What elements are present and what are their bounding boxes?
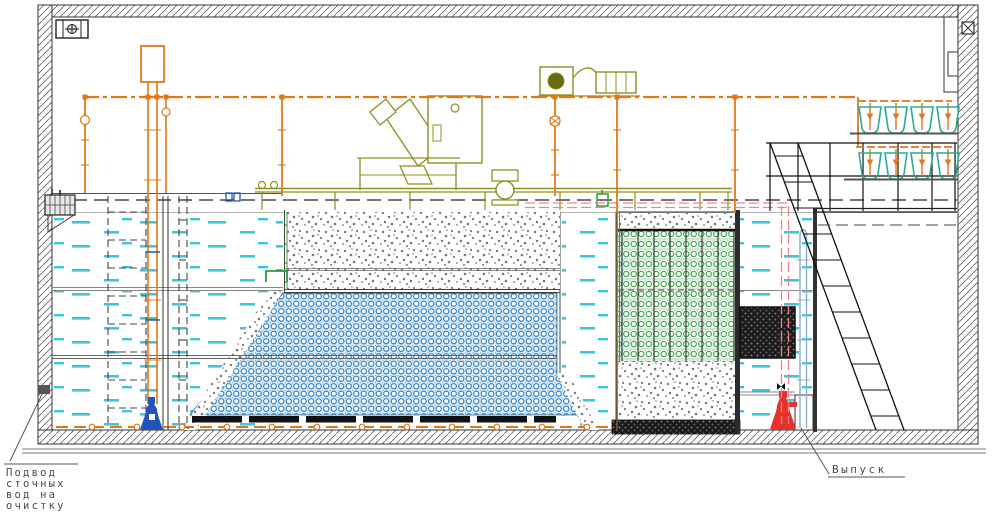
floor-air-pipe	[56, 424, 610, 430]
outlet-pump-branch	[788, 402, 797, 407]
inlet-label-line4: очистку	[6, 500, 66, 512]
service-platform	[255, 182, 732, 211]
blower-unit	[538, 67, 640, 96]
outlet-pump-stub	[779, 391, 787, 398]
biofilter-green-section	[612, 210, 740, 434]
vent-fan-icon	[56, 20, 88, 38]
screen-machine	[357, 96, 482, 190]
inlet-pump-window	[149, 414, 155, 420]
outlet-label-text: Выпуск	[832, 463, 887, 476]
dosing-hoppers	[844, 101, 959, 180]
inlet-pump-stub	[148, 397, 155, 404]
tank-divider	[163, 196, 168, 430]
gravel-layer	[284, 210, 560, 293]
landing-floor	[813, 209, 957, 226]
inlet-fitting	[38, 385, 50, 394]
pump-unit	[492, 170, 518, 205]
treatment-plant-drawing: Подвод сточных вод на очистку Выпуск	[0, 0, 1000, 512]
ground-lines	[22, 449, 986, 453]
clarifier-tank	[740, 208, 817, 432]
